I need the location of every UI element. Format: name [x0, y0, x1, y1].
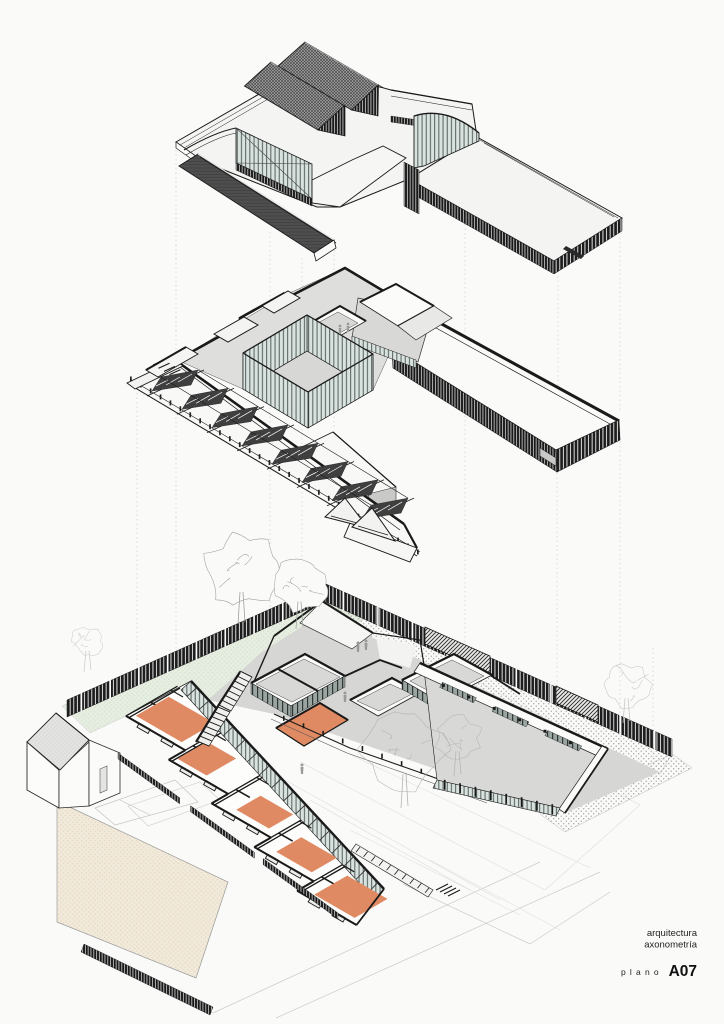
svg-text:plano: plano — [621, 967, 663, 977]
svg-text:A07: A07 — [669, 963, 697, 980]
svg-text:axonometría: axonometría — [644, 940, 698, 951]
svg-text:arquitectura: arquitectura — [647, 928, 698, 939]
